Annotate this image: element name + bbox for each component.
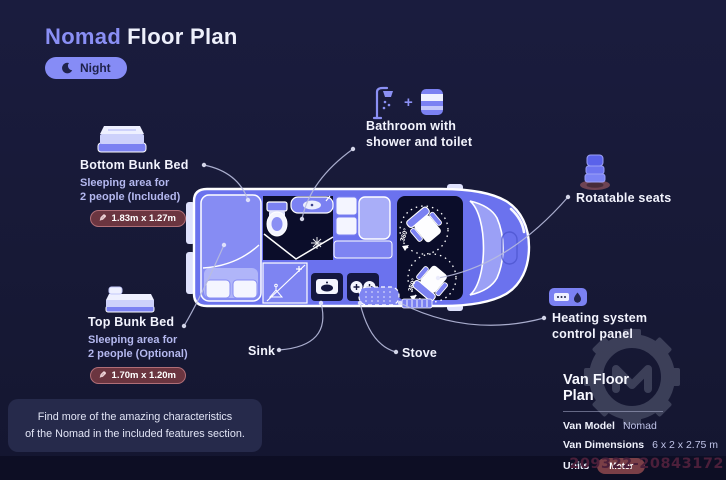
- van-dinette: [334, 197, 392, 258]
- top-bunk-desc-1: Sleeping area for: [88, 333, 238, 347]
- callout-sink: Sink: [248, 344, 275, 360]
- bathroom-icons: +: [372, 84, 445, 120]
- infographic-canvas: 360° 360°: [0, 0, 726, 480]
- van-bathroom: [263, 196, 333, 260]
- page-title: NomadFloor Plan: [45, 24, 238, 50]
- top-bunk-desc-2: 2 people (Optional): [88, 347, 238, 361]
- footer-note: Find more of the amazing characteristics…: [8, 399, 262, 452]
- rotatable-seat-icon: [578, 153, 612, 191]
- heating-control-icon: [549, 288, 587, 308]
- heating-label-2: control panel: [552, 327, 647, 343]
- callout-bottom-bunk: Bottom Bunk Bed Sleeping area for 2 peop…: [80, 122, 230, 227]
- callout-rotatable-seats: Rotatable seats: [576, 191, 671, 207]
- night-badge-label: Night: [80, 61, 111, 75]
- van-cab: 360° 360°: [397, 196, 463, 303]
- title-rest: Floor Plan: [127, 24, 238, 49]
- footer-note-line-1: Find more of the amazing characteristics: [38, 409, 232, 426]
- rotatable-seats-label: Rotatable seats: [576, 191, 671, 205]
- info-panel-heading: Van Floor Plan: [563, 372, 663, 412]
- model-value: Nomad: [623, 420, 657, 432]
- dimensions-label: Van Dimensions: [563, 439, 644, 451]
- model-label: Van Model: [563, 420, 615, 432]
- toilet-icon: [419, 87, 445, 117]
- dimensions-value: 6 x 2 x 2.75 m: [652, 439, 718, 451]
- night-mode-badge[interactable]: Night: [45, 57, 127, 79]
- moon-icon: [61, 62, 73, 74]
- bathroom-label-1: Bathroom with: [366, 119, 472, 135]
- heating-panel-shape: [359, 287, 399, 305]
- bottom-bunk-desc-2: 2 people (Included): [80, 190, 230, 204]
- bottom-bunk-desc-1: Sleeping area for: [80, 176, 230, 190]
- bottom-bunk-title: Bottom Bunk Bed: [80, 158, 230, 174]
- stove-label: Stove: [402, 346, 437, 360]
- ruler-icon: ✎: [99, 370, 107, 381]
- toilet-shape: [267, 202, 287, 236]
- bathroom-label-2: shower and toilet: [366, 135, 472, 151]
- callout-stove: Stove: [402, 346, 437, 362]
- bottom-bunk-dimensions-badge: ✎ 1.83m x 1.27m: [90, 210, 186, 227]
- info-row-dimensions: Van Dimensions 6 x 2 x 2.75 m: [563, 439, 725, 451]
- brand-name: Nomad: [45, 24, 121, 49]
- top-bunk-dimensions-badge: ✎ 1.70m x 1.20m: [90, 367, 186, 384]
- top-bunk-dimensions: 1.70m x 1.20m: [112, 370, 176, 381]
- plus-icon: +: [404, 94, 413, 111]
- footer-note-line-2: of the Nomad in the included features se…: [25, 426, 245, 443]
- sink-label: Sink: [248, 344, 275, 358]
- watermark-id-number: 209322-20843172: [569, 456, 724, 472]
- callout-top-bunk: Top Bunk Bed Sleeping area for 2 people …: [88, 281, 238, 384]
- heating-label-1: Heating system: [552, 311, 647, 327]
- callout-heating: Heating system control panel: [552, 311, 647, 342]
- callout-bathroom: Bathroom with shower and toilet: [366, 119, 472, 150]
- shower-icon: [372, 84, 398, 120]
- top-bunk-bed-icon: [104, 281, 156, 315]
- ruler-icon: ✎: [99, 213, 107, 224]
- top-bunk-title: Top Bunk Bed: [88, 315, 238, 331]
- info-row-model: Van Model Nomad: [563, 420, 725, 432]
- bottom-bunk-bed-icon: [94, 122, 150, 158]
- sink-shape: [311, 273, 343, 301]
- bottom-bunk-dimensions: 1.83m x 1.27m: [112, 213, 176, 224]
